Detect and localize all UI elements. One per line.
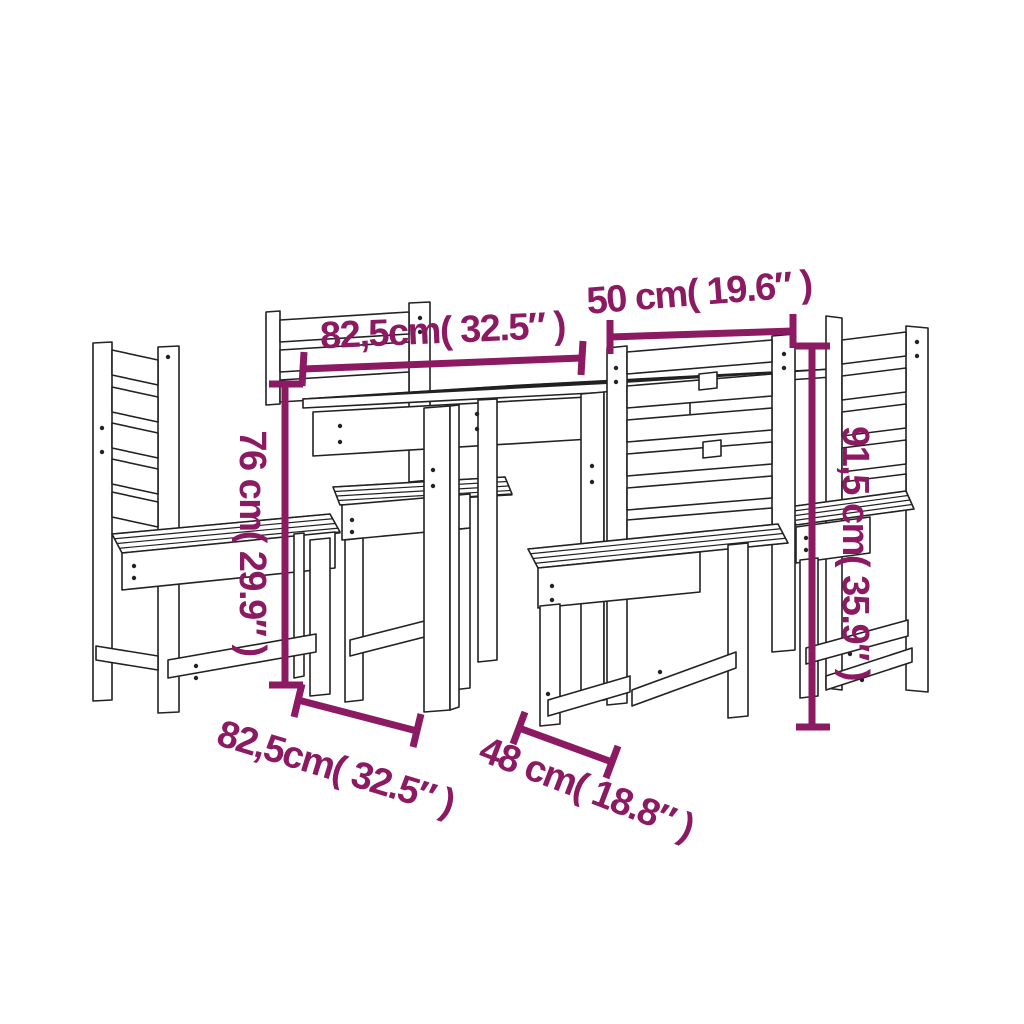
product-dimension-image: 82,5cm( 32.5″ ) 50 cm( 19.6″ ) 76 cm( 29… (0, 0, 1024, 1024)
dim-chair-back-width-label: 50 cm( 19.6″ ) (585, 263, 813, 323)
dim-chair-seat-width-label: 48 cm( 18.8″ ) (474, 729, 699, 849)
dim-chair-height-label: 91,5 cm( 35.9″ ) (834, 426, 876, 680)
dim-tabletop-width: 82,5cm( 32.5″ ) (302, 305, 583, 386)
dim-tabletop-depth: 82,5cm( 32.5″ ) (212, 684, 459, 824)
dim-chair-seat-width: 48 cm( 18.8″ ) (474, 712, 699, 849)
dining-set-diagram: 82,5cm( 32.5″ ) 50 cm( 19.6″ ) 76 cm( 29… (0, 0, 1024, 1024)
dim-table-height-label: 76 cm( 29.9″ ) (231, 430, 273, 655)
dim-tabletop-depth-label: 82,5cm( 32.5″ ) (212, 713, 459, 825)
dim-tabletop-width-label: 82,5cm( 32.5″ ) (319, 305, 566, 358)
